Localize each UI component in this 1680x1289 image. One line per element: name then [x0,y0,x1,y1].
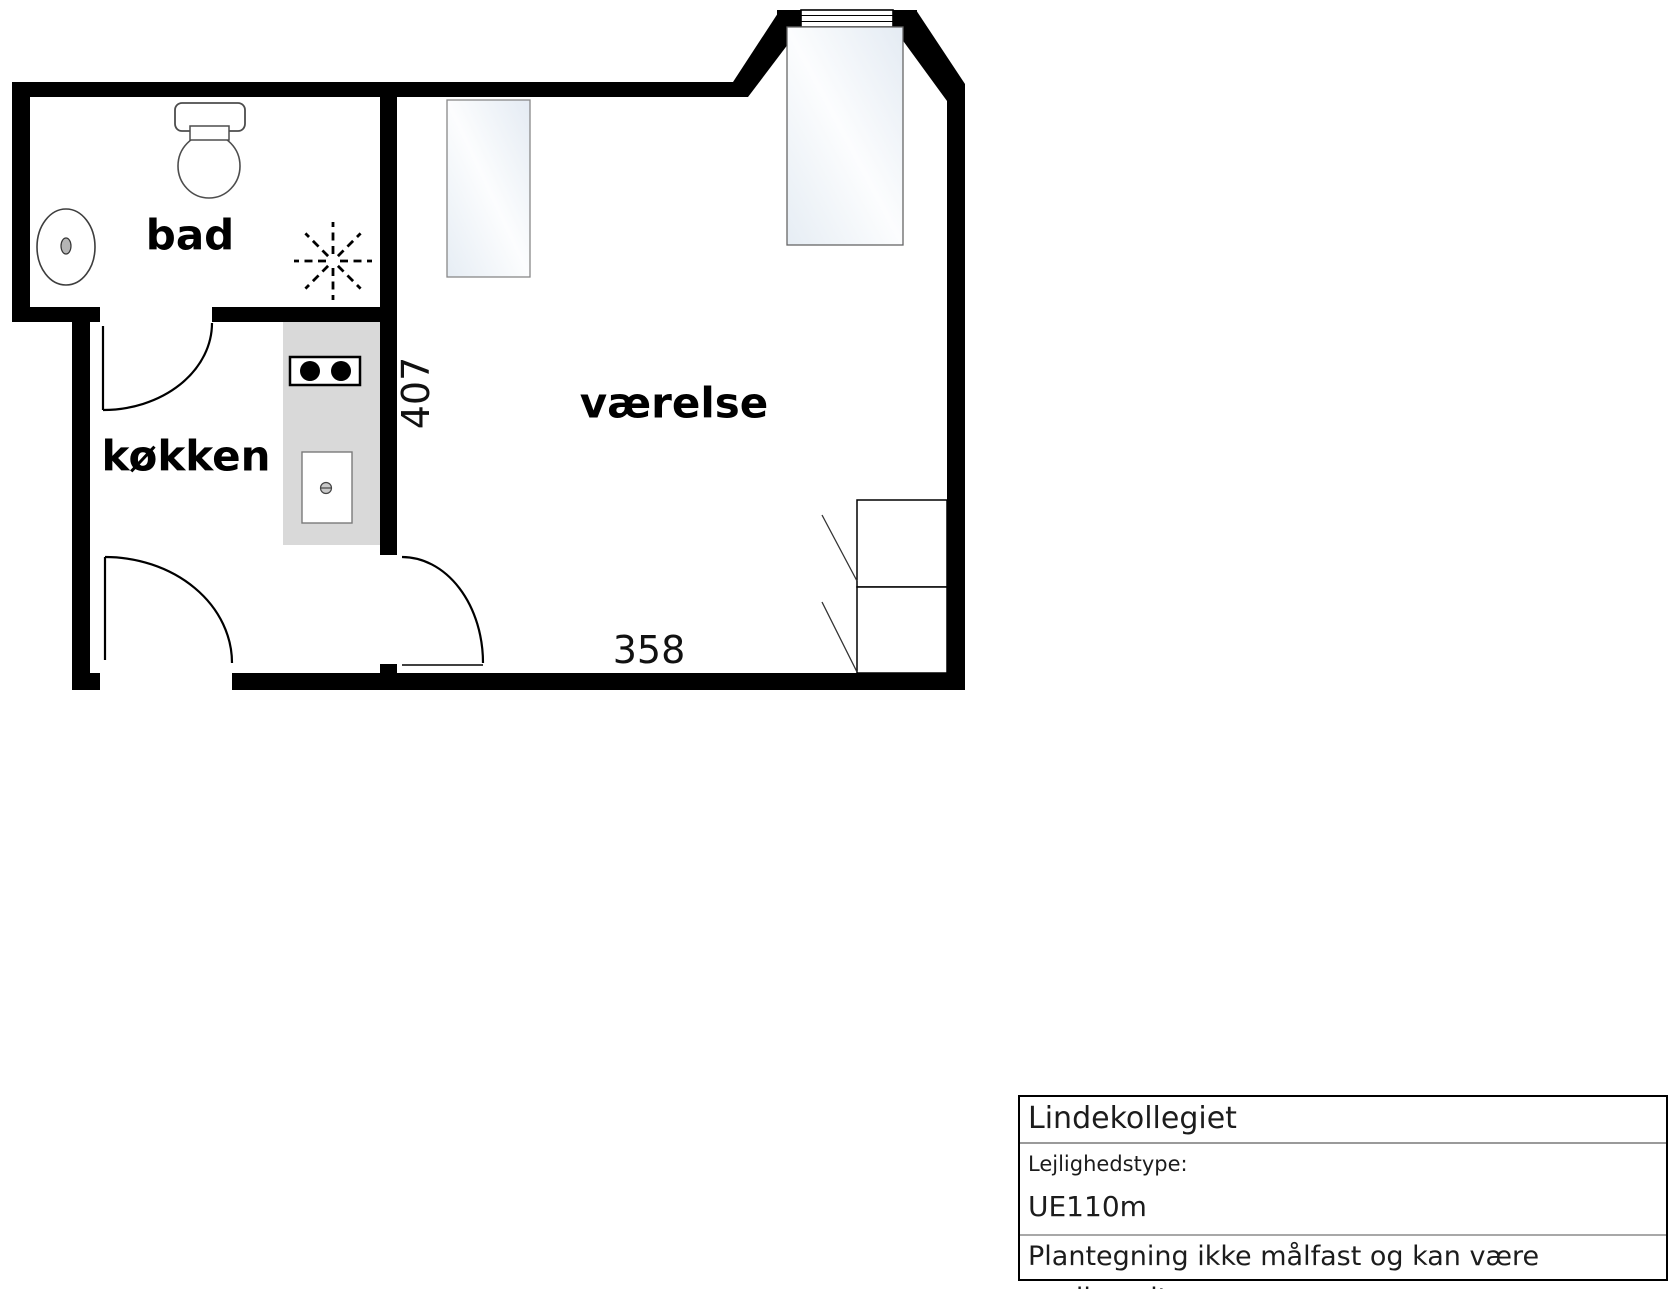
floor-plan-drawing: bad køkken værelse 407 358 [0,0,1000,720]
apartment-type-label: Lejlighedstype: [1028,1144,1666,1176]
apartment-type-row: Lejlighedstype: UE110m [1020,1144,1666,1236]
floor-plan-page: bad køkken værelse 407 358 Lindekollegie… [0,0,1680,1289]
wall-interior-vertical [380,97,397,555]
door-bath-kitchen [103,323,212,410]
dimension-width-label: 358 [613,628,686,672]
room-label-kokken: køkken [102,432,271,481]
wall-bottom-main [232,673,965,690]
stove-icon [290,357,360,385]
bed [787,27,903,245]
kitchen-sink-icon [302,452,352,523]
wall-top [12,82,733,97]
wardrobe [857,500,947,673]
wall-bottom-stub [72,673,100,690]
wall-bath-bottom-right [212,307,397,322]
wall-kitchen-left [72,307,90,690]
door-entrance [105,557,232,663]
apartment-type-value: UE110m [1028,1176,1666,1223]
wall-bath-left [12,82,30,322]
bathroom-sink-icon [37,209,95,285]
door-kitchen-room [402,557,483,665]
desk [447,100,530,277]
project-title: Lindekollegiet [1020,1097,1666,1144]
wardrobe-door-lines [822,515,857,672]
room-label-vaerelse: værelse [580,379,768,428]
wall-right [947,84,965,690]
wall-door-jamb [380,664,397,675]
window-post-left [777,10,801,27]
window-post-right [893,10,917,27]
toilet-icon [175,103,245,198]
dimension-height-label: 407 [394,357,438,430]
shower-drain-icon [294,222,372,300]
window-icon [801,10,893,27]
disclaimer-text: Plantegning ikke målfast og kan være spe… [1020,1236,1666,1279]
room-label-bad: bad [146,211,234,260]
title-block: Lindekollegiet Lejlighedstype: UE110m Pl… [1018,1095,1668,1281]
